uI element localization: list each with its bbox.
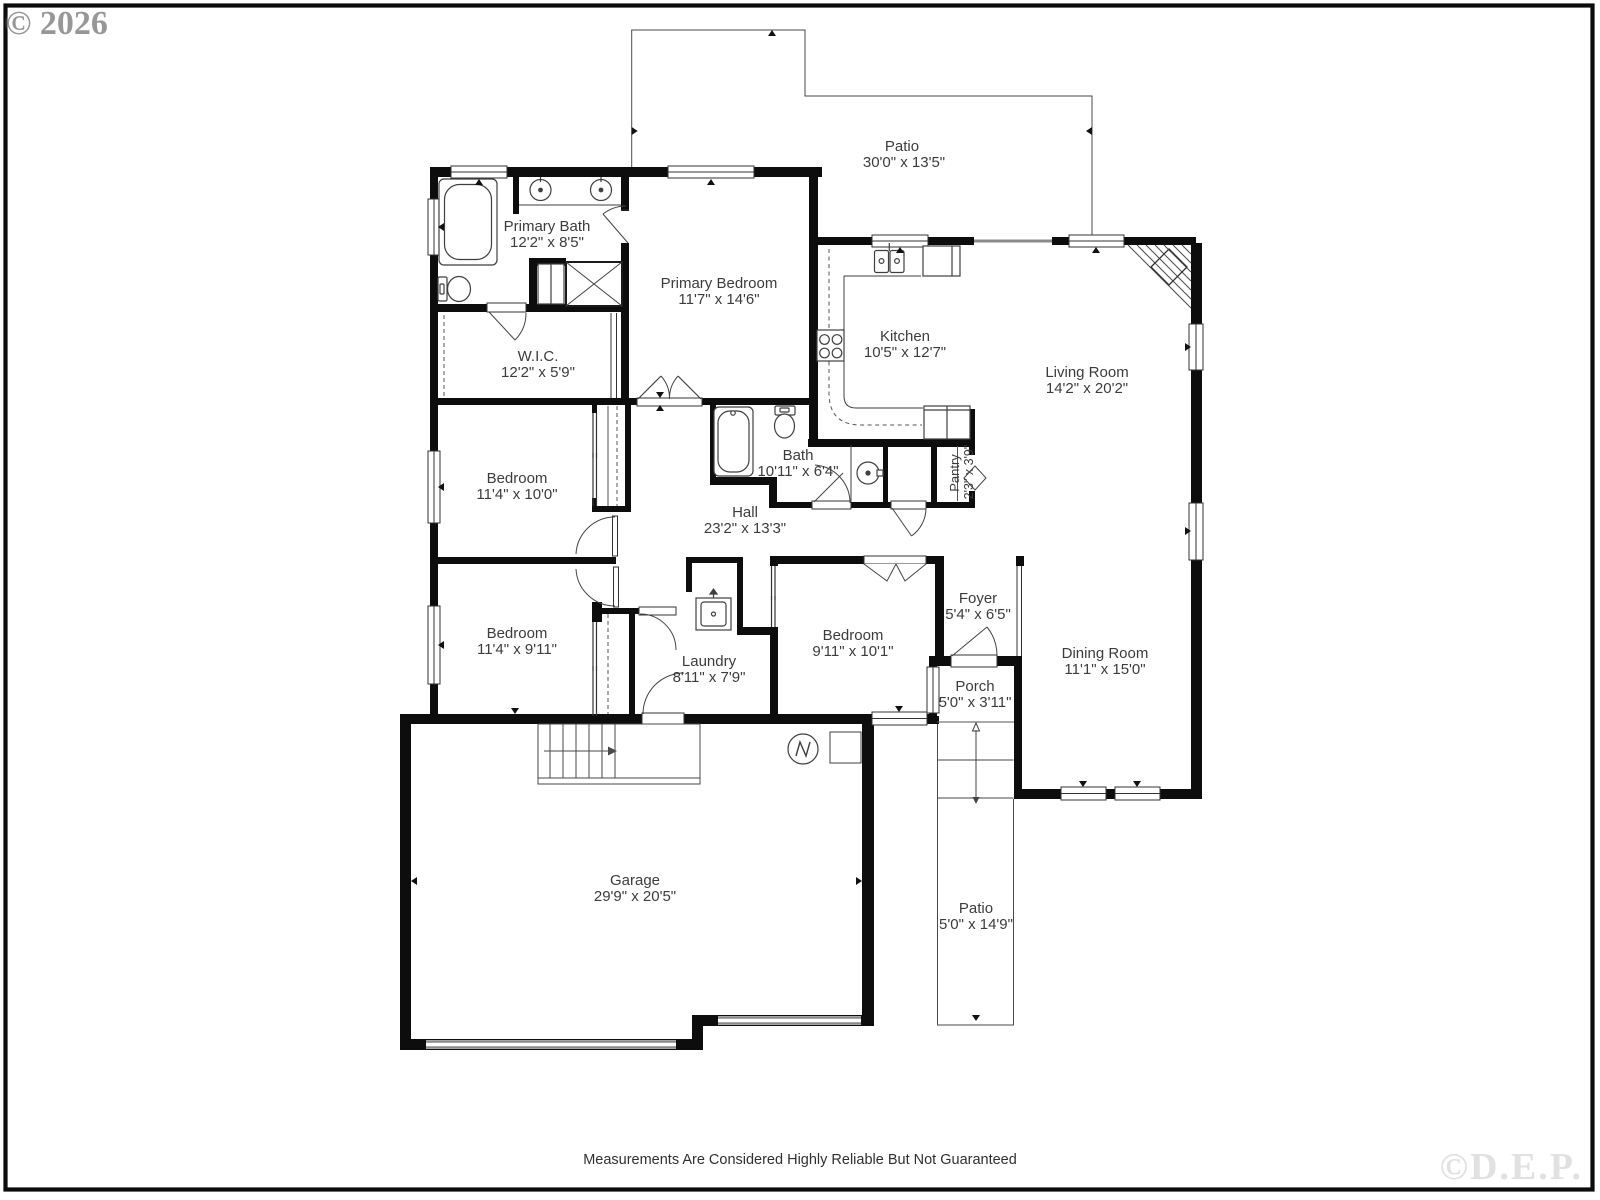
svg-text:30'0" x 13'5": 30'0" x 13'5" <box>863 154 945 171</box>
svg-text:5'4" x 6'5": 5'4" x 6'5" <box>945 606 1011 623</box>
svg-text:Pantry: Pantry <box>947 454 962 492</box>
svg-text:9'11" x 10'1": 9'11" x 10'1" <box>812 643 893 660</box>
svg-text:Kitchen: Kitchen <box>880 328 930 345</box>
svg-text:Garage: Garage <box>610 872 660 889</box>
svg-text:29'9" x 20'5": 29'9" x 20'5" <box>594 888 676 905</box>
svg-text:11'7" x 14'6": 11'7" x 14'6" <box>678 291 759 308</box>
svg-text:Primary Bedroom: Primary Bedroom <box>661 275 778 292</box>
svg-text:W.I.C.: W.I.C. <box>518 348 559 365</box>
svg-text:23'2" x 13'3": 23'2" x 13'3" <box>704 520 786 537</box>
svg-text:Hall: Hall <box>732 504 758 521</box>
svg-text:Porch: Porch <box>955 678 994 695</box>
svg-text:14'2" x 20'2": 14'2" x 20'2" <box>1046 380 1128 397</box>
svg-text:Dining Room: Dining Room <box>1062 645 1149 662</box>
svg-text:Measurements Are Considered Hi: Measurements Are Considered Highly Relia… <box>583 1152 1017 1168</box>
svg-text:11'4" x 9'11": 11'4" x 9'11" <box>477 641 557 658</box>
svg-text:Primary Bath: Primary Bath <box>504 218 591 235</box>
svg-text:Patio: Patio <box>959 900 993 917</box>
svg-text:11'4" x 10'0": 11'4" x 10'0" <box>476 486 557 503</box>
svg-text:10'11" x 6'4": 10'11" x 6'4" <box>757 463 838 480</box>
svg-text:Bedroom: Bedroom <box>487 625 548 642</box>
svg-text:©D.E.P.: ©D.E.P. <box>1440 1146 1583 1188</box>
svg-text:5'0" x 3'11": 5'0" x 3'11" <box>939 694 1012 711</box>
svg-text:Foyer: Foyer <box>959 590 997 607</box>
svg-text:© 2026: © 2026 <box>6 5 108 42</box>
svg-text:12'2" x 8'5": 12'2" x 8'5" <box>510 234 584 251</box>
svg-text:Patio: Patio <box>885 138 919 155</box>
svg-text:11'1" x 15'0": 11'1" x 15'0" <box>1064 661 1145 678</box>
svg-text:Bedroom: Bedroom <box>823 627 884 644</box>
svg-text:Living Room: Living Room <box>1045 364 1128 381</box>
svg-text:Bath: Bath <box>783 447 814 464</box>
svg-text:Bedroom: Bedroom <box>487 470 548 487</box>
svg-text:8'11" x 7'9": 8'11" x 7'9" <box>673 669 746 686</box>
svg-text:Laundry: Laundry <box>682 653 737 670</box>
svg-text:10'5" x 12'7": 10'5" x 12'7" <box>864 344 946 361</box>
svg-text:12'2" x 5'9": 12'2" x 5'9" <box>501 364 575 381</box>
svg-text:5'0" x 14'9": 5'0" x 14'9" <box>939 916 1013 933</box>
svg-text:2'3" x 3'9": 2'3" x 3'9" <box>962 445 976 500</box>
